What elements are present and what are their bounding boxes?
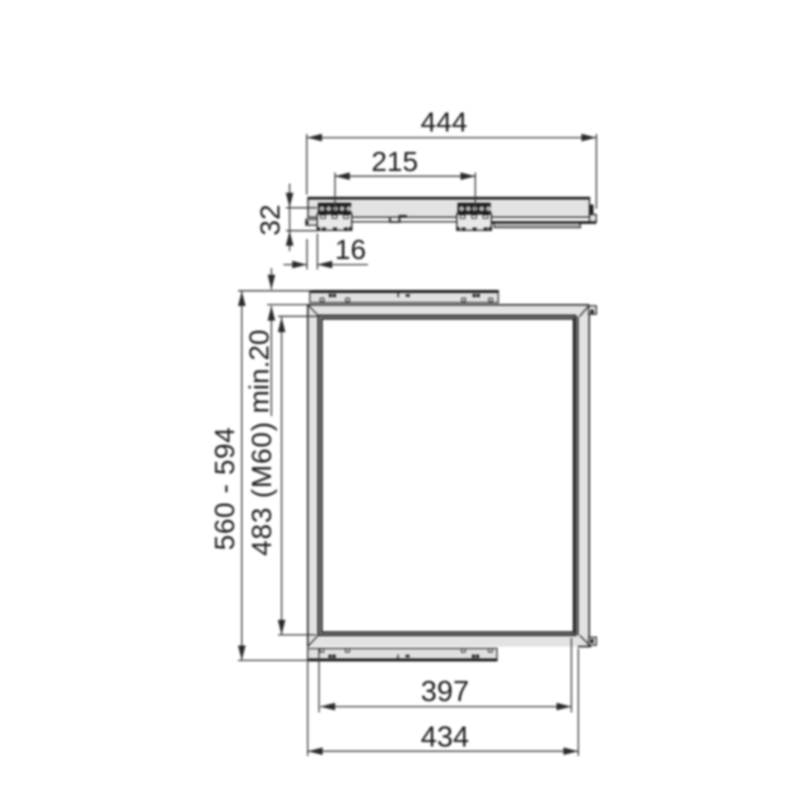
svg-text:444: 444 [421, 107, 468, 138]
svg-text:32: 32 [255, 204, 286, 235]
svg-text:560 - 594: 560 - 594 [209, 427, 240, 551]
svg-text:483 (M60): 483 (M60) [246, 421, 277, 556]
svg-text:215: 215 [371, 146, 418, 177]
svg-text:397: 397 [421, 676, 469, 708]
svg-text:434: 434 [421, 722, 469, 754]
svg-text:16: 16 [335, 234, 366, 265]
svg-text:min.20: min.20 [244, 329, 275, 413]
